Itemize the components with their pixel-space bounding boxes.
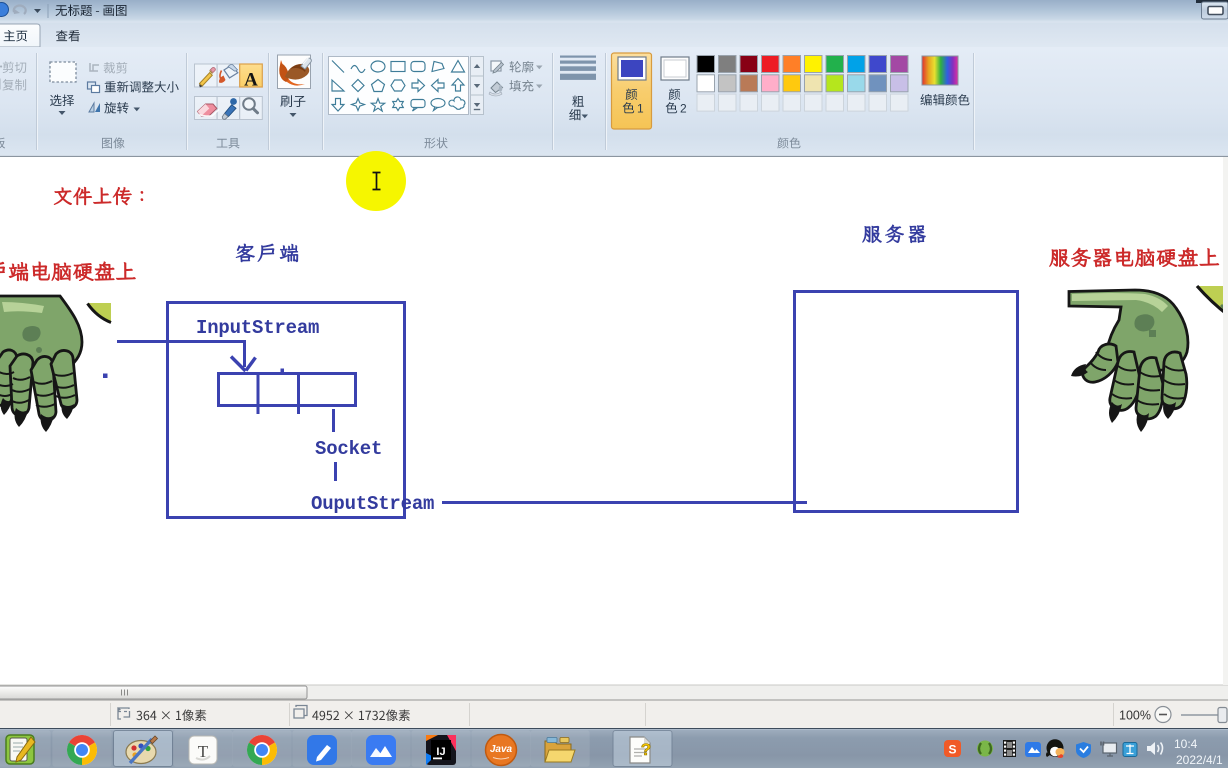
svg-text:A: A xyxy=(244,70,258,91)
svg-text:S: S xyxy=(948,743,956,757)
svg-text:100%: 100% xyxy=(1119,709,1151,723)
svg-text:10:4: 10:4 xyxy=(1174,737,1198,751)
svg-text:OuputStream: OuputStream xyxy=(311,493,434,515)
svg-text:Java: Java xyxy=(490,744,513,755)
svg-text:InputStream: InputStream xyxy=(196,317,319,339)
svg-text:2022/4/1: 2022/4/1 xyxy=(1176,753,1223,767)
svg-text:Socket: Socket xyxy=(315,438,382,460)
svg-text:?: ? xyxy=(641,740,651,759)
svg-text:T: T xyxy=(198,742,209,761)
svg-text:2: 2 xyxy=(680,102,687,116)
svg-text:IJ: IJ xyxy=(436,746,445,758)
svg-text:1: 1 xyxy=(637,102,644,116)
